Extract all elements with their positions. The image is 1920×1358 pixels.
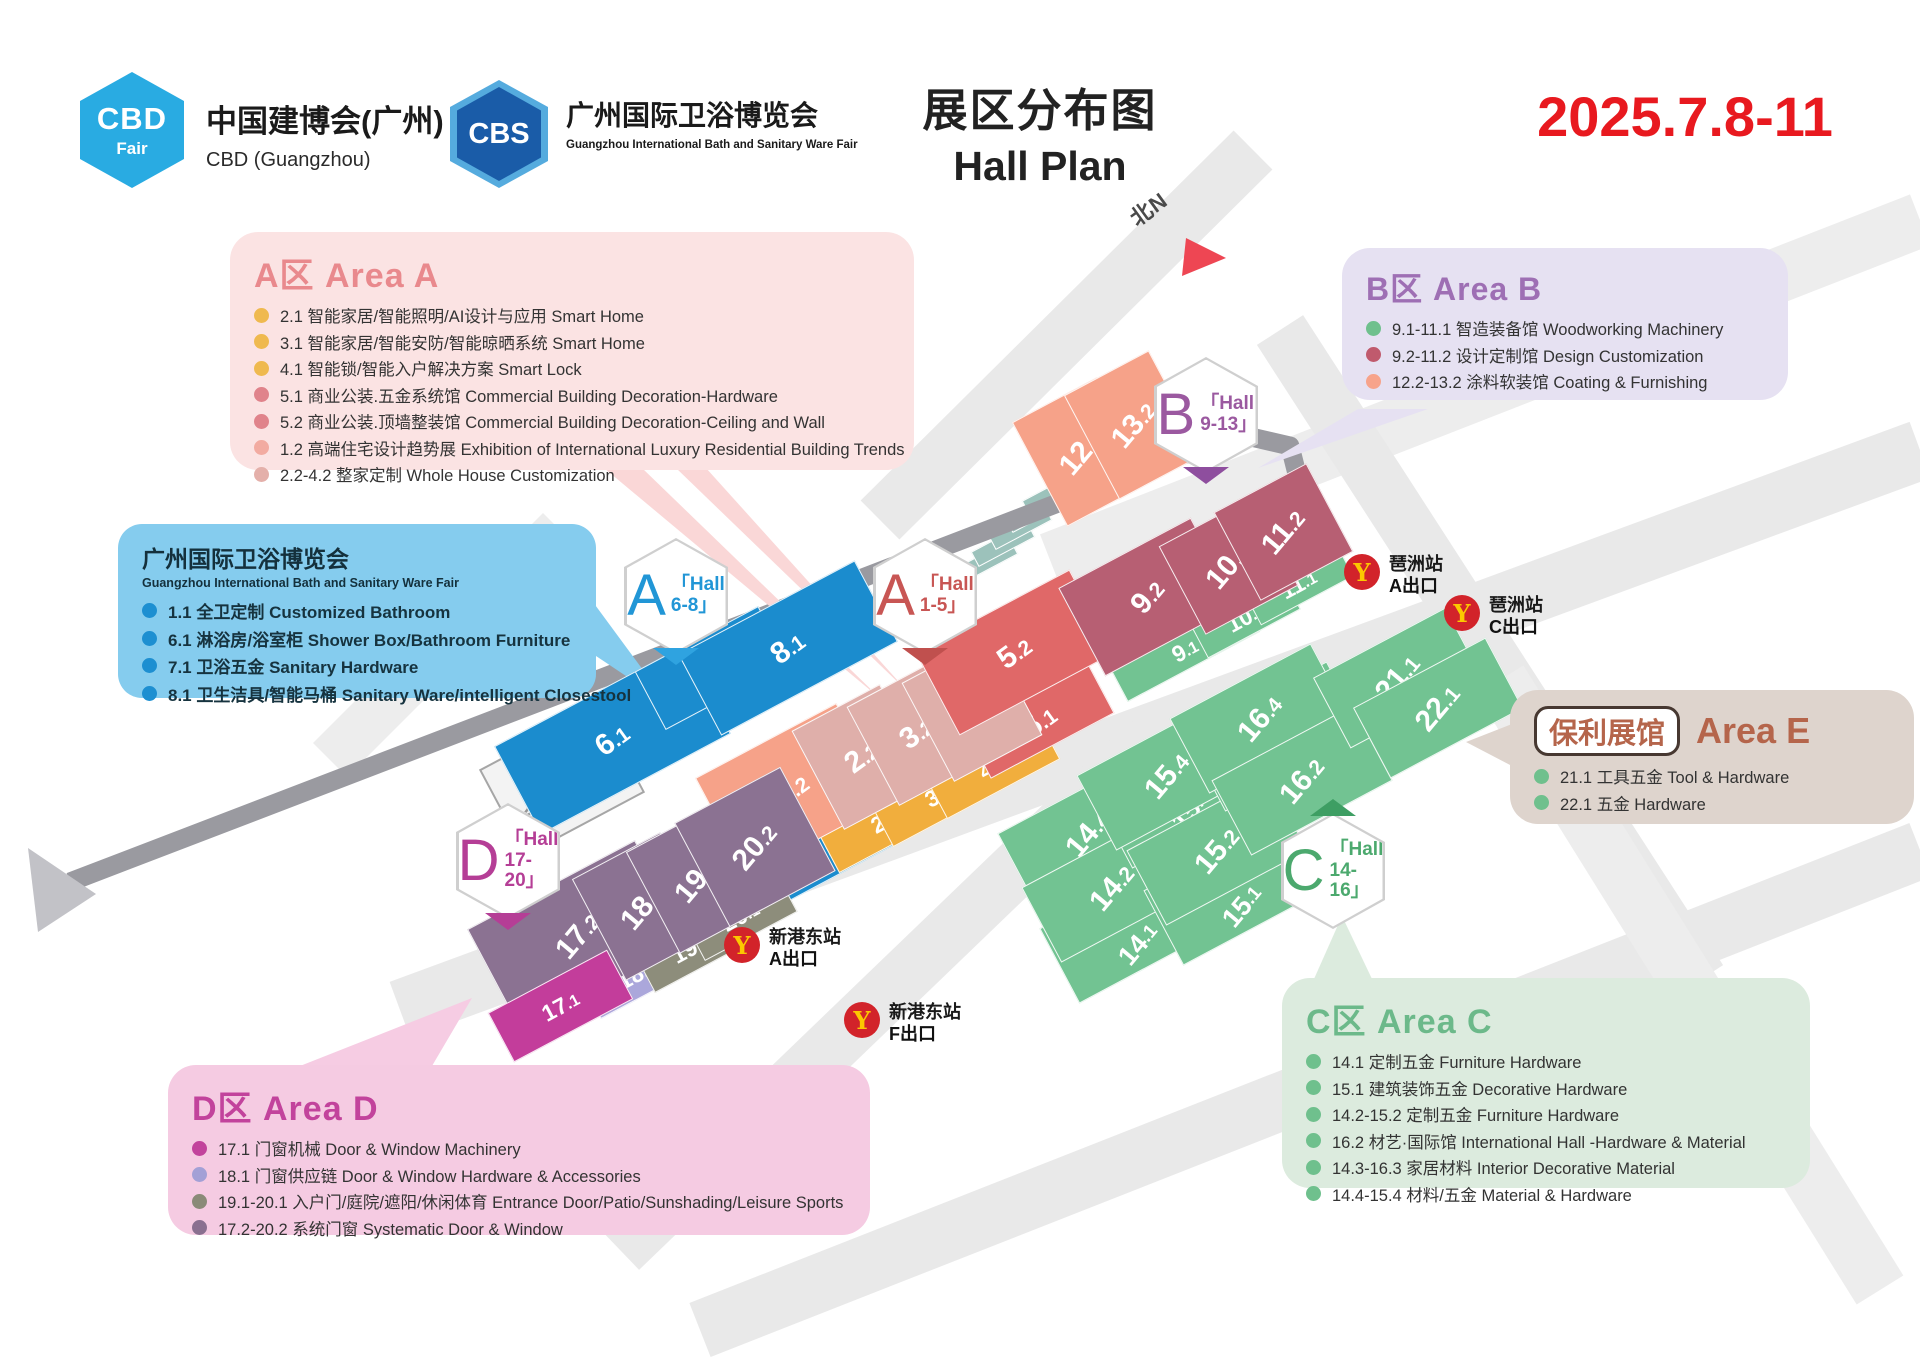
legend-area-c: C区 Area C 14.1 定制五金 Furniture Hardware15… xyxy=(1282,978,1810,1188)
legend-a-item: 5.1 商业公装.五金系统馆 Commercial Building Decor… xyxy=(254,383,892,407)
legend-dot-icon xyxy=(1306,1107,1321,1122)
legend-item-text: 17.2-20.2 系统门窗 Systematic Door & Window xyxy=(218,1216,563,1240)
legend-bath-title: 广州国际卫浴博览会 xyxy=(142,540,574,574)
legend-c-item: 14.4-15.4 材料/五金 Material & Hardware xyxy=(1306,1182,1788,1206)
legend-area-a-title: A区 Area A xyxy=(254,248,892,297)
legend-item-text: 19.1-20.1 入户门/庭院/遮阳/休闲体育 Entrance Door/P… xyxy=(218,1189,843,1213)
legend-dot-icon xyxy=(254,387,269,402)
legend-dot-icon xyxy=(1366,347,1381,362)
legend-dot-icon xyxy=(142,603,157,618)
legend-item-text: 4.1 智能锁/智能入户解决方案 Smart Lock xyxy=(280,356,582,380)
poly-pavilion-pill: 保利展馆 xyxy=(1534,706,1680,756)
legend-dot-icon xyxy=(1534,769,1549,784)
legend-dot-icon xyxy=(192,1167,207,1182)
legend-e-item: 21.1 工具五金 Tool & Hardware xyxy=(1534,764,1892,788)
legend-a-item: 5.2 商业公装.顶墙整装馆 Commercial Building Decor… xyxy=(254,409,892,433)
legend-item-text: 15.1 建筑装饰五金 Decorative Hardware xyxy=(1332,1076,1627,1100)
cbs-title: 广州国际卫浴博览会 xyxy=(566,94,858,134)
hall-plan-poster: 国际 会议中心 北N 1.12.13.14.15.11.22.23.24.25.… xyxy=(0,0,1920,1358)
legend-dot-icon xyxy=(254,440,269,455)
legend-dot-icon xyxy=(142,631,157,646)
legend-a-item: 2.1 智能家居/智能照明/AI设计与应用 Smart Home xyxy=(254,303,892,327)
header: CBD Fair 中国建博会(广州) CBD (Guangzhou) CBS 广… xyxy=(0,0,1920,200)
legend-item-text: 8.1 卫生洁具/智能马桶 Sanitary Ware/intelligent … xyxy=(168,681,631,706)
legend-a-item: 1.2 高端住宅设计趋势展 Exhibition of Internationa… xyxy=(254,436,892,460)
legend-item-text: 7.1 卫浴五金 Sanitary Hardware xyxy=(168,653,418,678)
legend-c-item: 15.1 建筑装饰五金 Decorative Hardware xyxy=(1306,1076,1788,1100)
legend-dot-icon xyxy=(1306,1133,1321,1148)
legend-bath-item: 6.1 淋浴房/浴室柜 Shower Box/Bathroom Furnitur… xyxy=(142,626,574,651)
legends-layer: A区 Area A 2.1 智能家居/智能照明/AI设计与应用 Smart Ho… xyxy=(0,0,1920,1358)
legend-item-text: 14.4-15.4 材料/五金 Material & Hardware xyxy=(1332,1182,1632,1206)
legend-item-text: 5.2 商业公装.顶墙整装馆 Commercial Building Decor… xyxy=(280,409,825,433)
legend-item-text: 12.2-13.2 涂料软装馆 Coating & Furnishing xyxy=(1392,369,1707,393)
legend-item-text: 17.1 门窗机械 Door & Window Machinery xyxy=(218,1136,521,1160)
cbd-logo-caption: 中国建博会(广州) CBD (Guangzhou) xyxy=(206,96,444,172)
legend-dot-icon xyxy=(192,1194,207,1209)
legend-area-d: D区 Area D 17.1 门窗机械 Door & Window Machin… xyxy=(168,1065,870,1235)
legend-item-text: 14.1 定制五金 Furniture Hardware xyxy=(1332,1049,1581,1073)
legend-dot-icon xyxy=(142,686,157,701)
legend-dot-icon xyxy=(254,334,269,349)
legend-b-item: 9.1-11.1 智造装备馆 Woodworking Machinery xyxy=(1366,316,1766,340)
legend-b-item: 9.2-11.2 设计定制馆 Design Customization xyxy=(1366,343,1766,367)
legend-item-text: 18.1 门窗供应链 Door & Window Hardware & Acce… xyxy=(218,1163,641,1187)
legend-item-text: 9.2-11.2 设计定制馆 Design Customization xyxy=(1392,343,1703,367)
legend-a-item: 3.1 智能家居/智能安防/智能晾晒系统 Smart Home xyxy=(254,330,892,354)
legend-dot-icon xyxy=(1534,795,1549,810)
legend-area-e: 保利展馆 Area E 21.1 工具五金 Tool & Hardware22.… xyxy=(1510,690,1914,824)
legend-a-item: 2.2-4.2 整家定制 Whole House Customization xyxy=(254,462,892,486)
legend-item-text: 9.1-11.1 智造装备馆 Woodworking Machinery xyxy=(1392,316,1723,340)
legend-d-item: 18.1 门窗供应链 Door & Window Hardware & Acce… xyxy=(192,1163,848,1187)
legend-dot-icon xyxy=(192,1141,207,1156)
legend-dot-icon xyxy=(254,361,269,376)
legend-item-text: 14.3-16.3 家居材料 Interior Decorative Mater… xyxy=(1332,1155,1675,1179)
legend-bath-item: 7.1 卫浴五金 Sanitary Hardware xyxy=(142,653,574,678)
cbs-logo: CBS xyxy=(450,80,548,188)
legend-item-text: 21.1 工具五金 Tool & Hardware xyxy=(1560,764,1789,788)
cbs-logo-text: CBS xyxy=(457,87,541,181)
page-title: 展区分布图 Hall Plan xyxy=(860,74,1220,190)
legend-area-c-title: C区 Area C xyxy=(1306,994,1788,1043)
legend-e-item: 22.1 五金 Hardware xyxy=(1534,791,1892,815)
legend-c-item: 14.1 定制五金 Furniture Hardware xyxy=(1306,1049,1788,1073)
legend-d-item: 17.1 门窗机械 Door & Window Machinery xyxy=(192,1136,848,1160)
legend-dot-icon xyxy=(1306,1054,1321,1069)
legend-d-item: 17.2-20.2 系统门窗 Systematic Door & Window xyxy=(192,1216,848,1240)
legend-dot-icon xyxy=(1306,1080,1321,1095)
legend-dot-icon xyxy=(254,467,269,482)
legend-area-b-title: B区 Area B xyxy=(1366,264,1766,310)
fair-dates: 2025.7.8-11 xyxy=(1500,84,1870,149)
page-title-cn: 展区分布图 xyxy=(860,74,1220,139)
cbd-subtitle: CBD (Guangzhou) xyxy=(206,149,444,172)
legend-d-item: 19.1-20.1 入户门/庭院/遮阳/休闲体育 Entrance Door/P… xyxy=(192,1189,848,1213)
legend-a-item: 4.1 智能锁/智能入户解决方案 Smart Lock xyxy=(254,356,892,380)
legend-area-d-title: D区 Area D xyxy=(192,1081,848,1130)
legend-item-text: 5.1 商业公装.五金系统馆 Commercial Building Decor… xyxy=(280,383,778,407)
cbs-subtitle: Guangzhou International Bath and Sanitar… xyxy=(566,139,858,151)
cbd-logo-text: CBD xyxy=(97,101,167,137)
cbd-fair-logo: CBD Fair xyxy=(80,72,184,188)
page-title-en: Hall Plan xyxy=(860,143,1220,190)
legend-bath-item: 8.1 卫生洁具/智能马桶 Sanitary Ware/intelligent … xyxy=(142,681,574,706)
legend-bath-fair: 广州国际卫浴博览会 Guangzhou International Bath a… xyxy=(118,524,596,698)
legend-dot-icon xyxy=(1366,374,1381,389)
legend-area-a: A区 Area A 2.1 智能家居/智能照明/AI设计与应用 Smart Ho… xyxy=(230,232,914,470)
legend-item-text: 6.1 淋浴房/浴室柜 Shower Box/Bathroom Furnitur… xyxy=(168,626,570,651)
legend-item-text: 2.2-4.2 整家定制 Whole House Customization xyxy=(280,462,615,486)
cbd-title: 中国建博会(广州) xyxy=(206,96,444,141)
legend-dot-icon xyxy=(1306,1160,1321,1175)
legend-item-text: 2.1 智能家居/智能照明/AI设计与应用 Smart Home xyxy=(280,303,644,327)
legend-c-item: 14.3-16.3 家居材料 Interior Decorative Mater… xyxy=(1306,1155,1788,1179)
legend-dot-icon xyxy=(1306,1186,1321,1201)
legend-item-text: 16.2 材艺·国际馆 International Hall -Hardware… xyxy=(1332,1129,1746,1153)
legend-dot-icon xyxy=(254,308,269,323)
legend-c-item: 14.2-15.2 定制五金 Furniture Hardware xyxy=(1306,1102,1788,1126)
legend-dot-icon xyxy=(254,414,269,429)
legend-item-text: 3.1 智能家居/智能安防/智能晾晒系统 Smart Home xyxy=(280,330,645,354)
legend-item-text: 22.1 五金 Hardware xyxy=(1560,791,1706,815)
legend-item-text: 14.2-15.2 定制五金 Furniture Hardware xyxy=(1332,1102,1619,1126)
legend-c-item: 16.2 材艺·国际馆 International Hall -Hardware… xyxy=(1306,1129,1788,1153)
legend-area-b: B区 Area B 9.1-11.1 智造装备馆 Woodworking Mac… xyxy=(1342,248,1788,400)
legend-bath-subtitle: Guangzhou International Bath and Sanitar… xyxy=(142,576,574,590)
legend-bath-item: 1.1 全卫定制 Customized Bathroom xyxy=(142,598,574,623)
legend-dot-icon xyxy=(142,658,157,673)
cbd-logo-fair-text: Fair xyxy=(116,139,147,159)
legend-b-item: 12.2-13.2 涂料软装馆 Coating & Furnishing xyxy=(1366,369,1766,393)
legend-item-text: 1.2 高端住宅设计趋势展 Exhibition of Internationa… xyxy=(280,436,905,460)
cbs-logo-caption: 广州国际卫浴博览会 Guangzhou International Bath a… xyxy=(566,94,858,151)
legend-item-text: 1.1 全卫定制 Customized Bathroom xyxy=(168,598,450,623)
legend-area-e-title: Area E xyxy=(1696,710,1810,752)
legend-dot-icon xyxy=(1366,321,1381,336)
legend-dot-icon xyxy=(192,1220,207,1235)
